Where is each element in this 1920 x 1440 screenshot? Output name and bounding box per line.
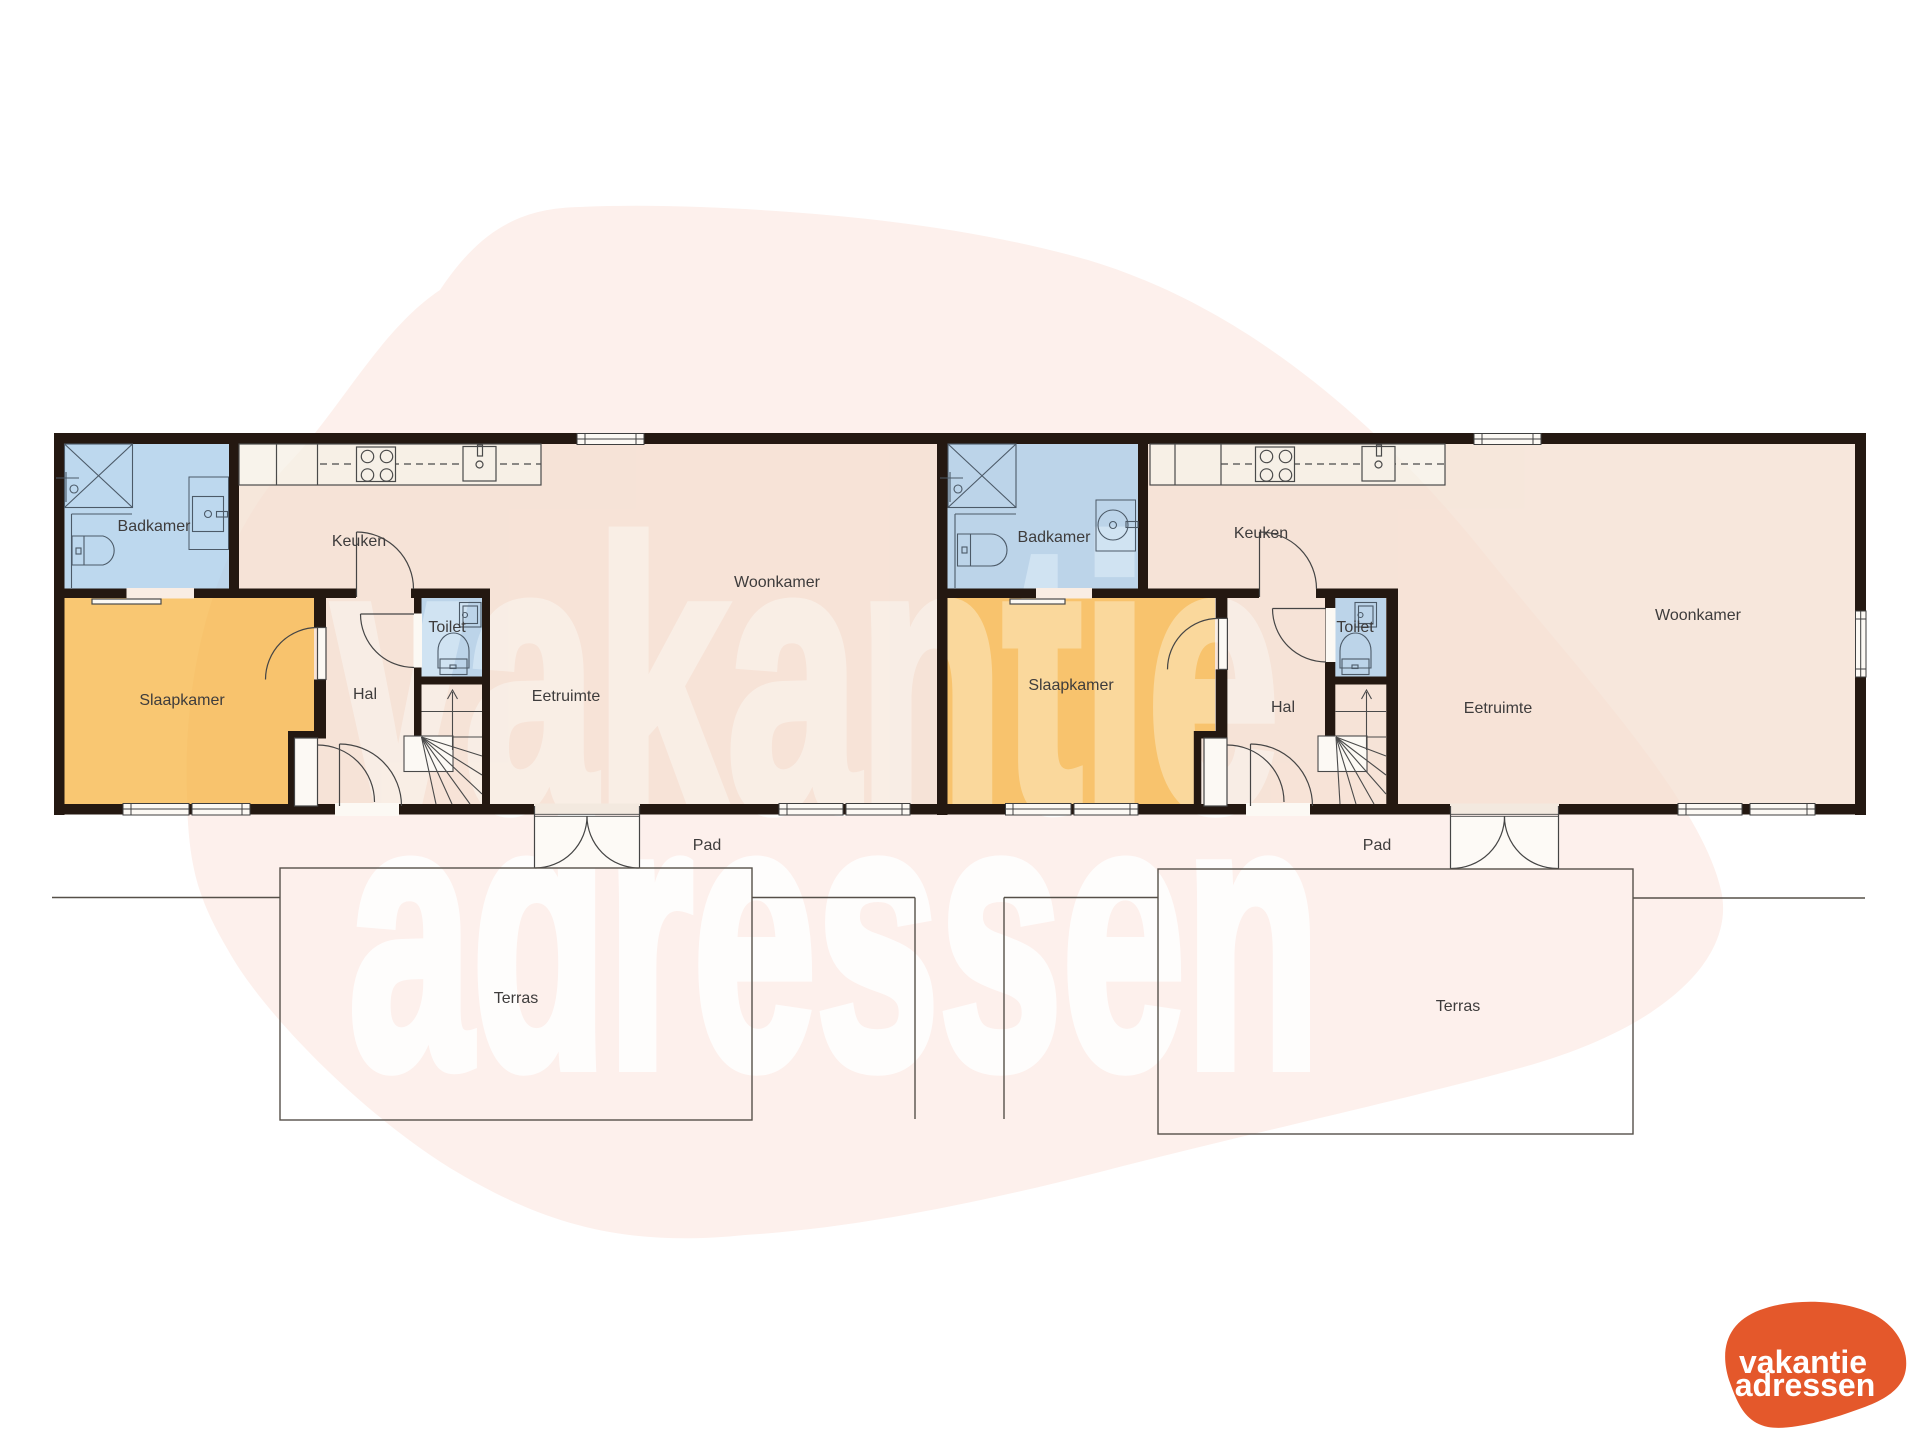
svg-text:Toilet: Toilet bbox=[1336, 619, 1374, 636]
svg-text:Slaapkamer: Slaapkamer bbox=[139, 692, 225, 709]
svg-text:Hal: Hal bbox=[1271, 699, 1295, 716]
svg-text:Pad: Pad bbox=[1363, 837, 1391, 854]
svg-text:Hal: Hal bbox=[353, 686, 377, 703]
svg-text:Woonkamer: Woonkamer bbox=[734, 574, 821, 591]
svg-text:Slaapkamer: Slaapkamer bbox=[1028, 677, 1114, 694]
svg-text:Terras: Terras bbox=[1436, 998, 1480, 1015]
svg-text:Eetruimte: Eetruimte bbox=[1464, 700, 1533, 717]
svg-text:Badkamer: Badkamer bbox=[118, 518, 192, 535]
svg-text:Terras: Terras bbox=[494, 990, 538, 1007]
svg-text:Pad: Pad bbox=[693, 837, 721, 854]
svg-text:Keuken: Keuken bbox=[332, 533, 386, 550]
svg-text:Badkamer: Badkamer bbox=[1018, 529, 1092, 546]
svg-text:Toilet: Toilet bbox=[428, 619, 466, 636]
svg-text:Eetruimte: Eetruimte bbox=[532, 688, 601, 705]
svg-text:Keuken: Keuken bbox=[1234, 525, 1288, 542]
svg-text:Woonkamer: Woonkamer bbox=[1655, 607, 1742, 624]
svg-text:adressen: adressen bbox=[1735, 1367, 1876, 1403]
